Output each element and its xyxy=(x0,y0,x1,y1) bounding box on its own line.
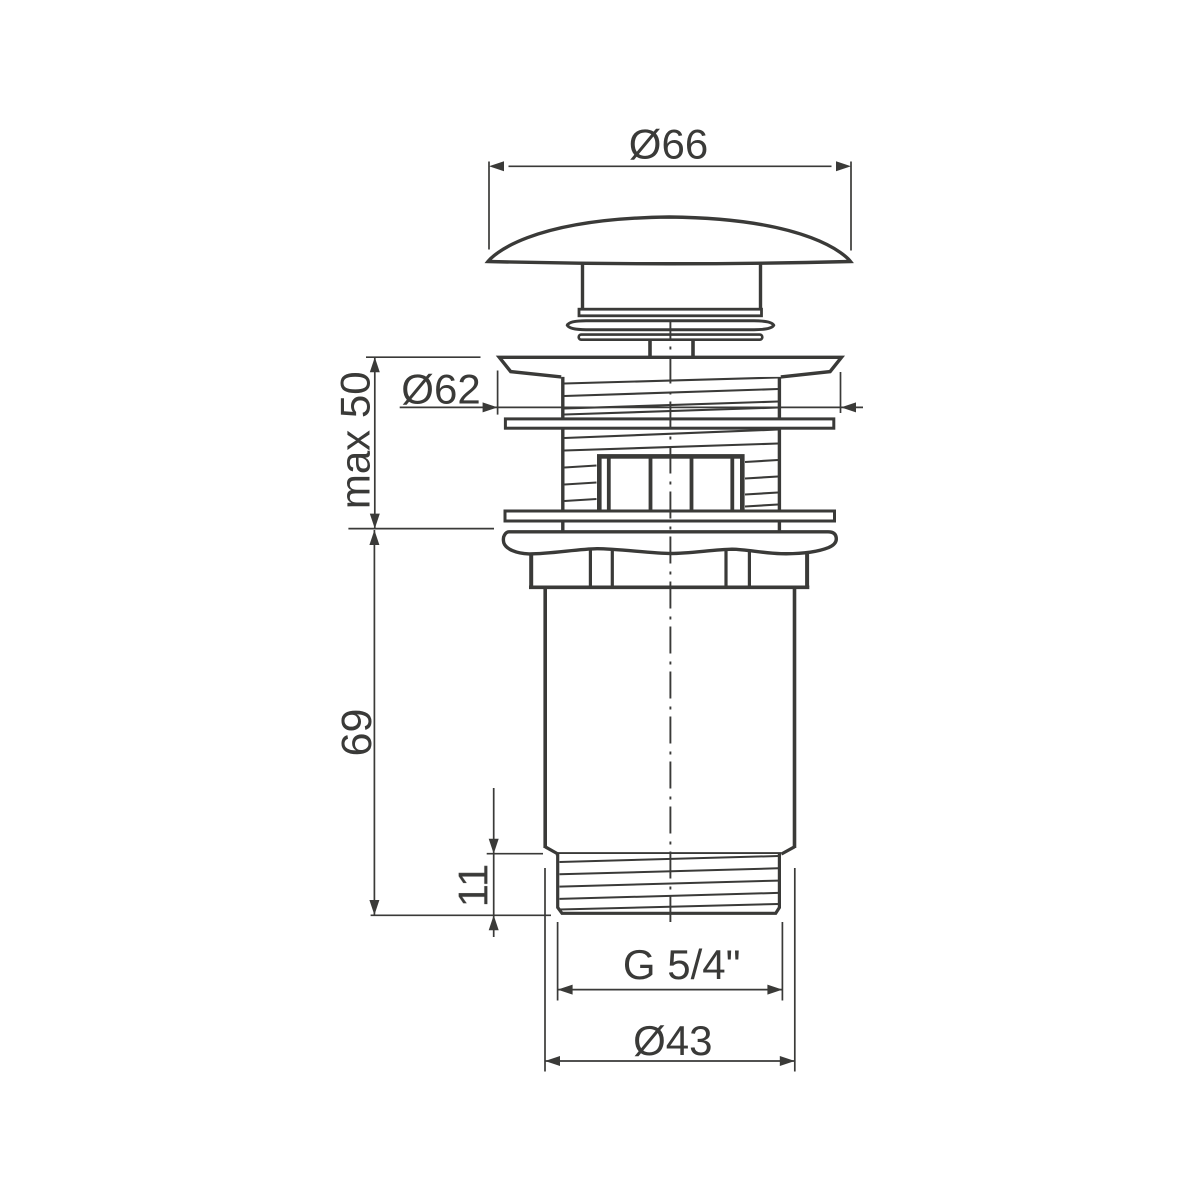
svg-text:11: 11 xyxy=(449,864,496,908)
svg-text:Ø62: Ø62 xyxy=(401,366,480,413)
svg-text:69: 69 xyxy=(333,709,381,757)
svg-text:G 5/4": G 5/4" xyxy=(623,941,741,988)
svg-text:Ø66: Ø66 xyxy=(629,121,708,168)
svg-text:max 50: max 50 xyxy=(331,371,378,509)
svg-text:Ø43: Ø43 xyxy=(633,1017,712,1064)
